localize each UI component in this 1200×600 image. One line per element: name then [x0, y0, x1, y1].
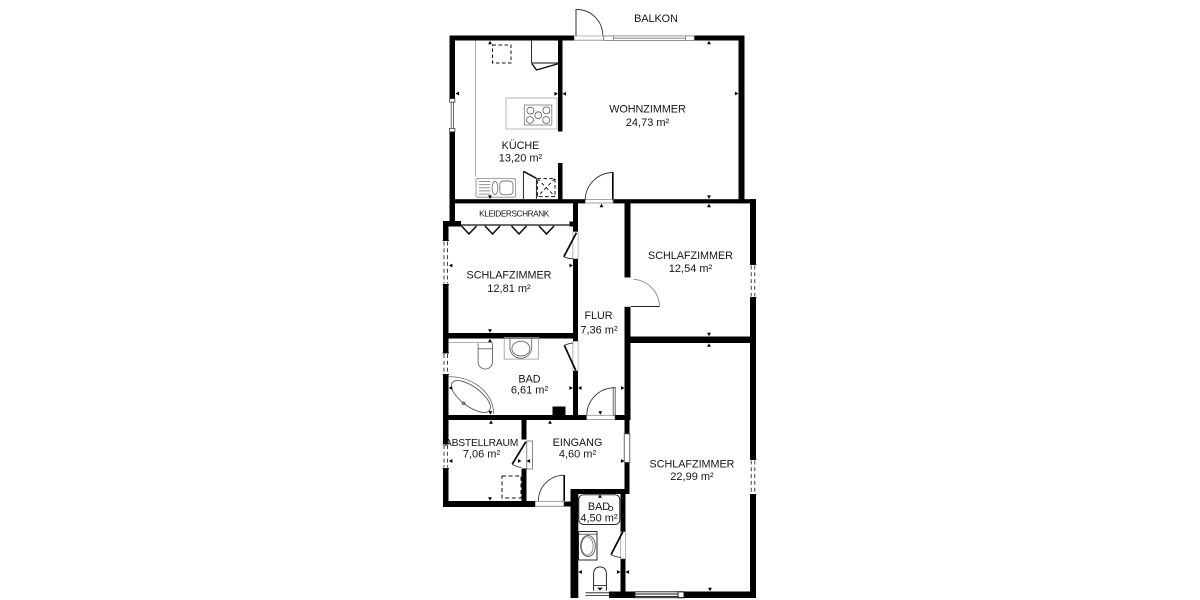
svg-text:ABSTELLRAUM: ABSTELLRAUM	[445, 438, 518, 449]
svg-text:KLEIDERSCHRANK: KLEIDERSCHRANK	[479, 209, 550, 219]
svg-text:6,61 m²: 6,61 m²	[511, 385, 549, 397]
svg-text:SCHLAFZIMMER: SCHLAFZIMMER	[648, 250, 733, 262]
svg-text:BAD: BAD	[588, 501, 610, 513]
svg-text:BALKON: BALKON	[634, 13, 678, 25]
svg-text:24,73 m²: 24,73 m²	[626, 117, 670, 129]
svg-text:22,99 m²: 22,99 m²	[670, 471, 714, 483]
svg-text:7,06 m²: 7,06 m²	[463, 449, 501, 461]
svg-text:12,54 m²: 12,54 m²	[669, 263, 713, 275]
svg-text:SCHLAFZIMMER: SCHLAFZIMMER	[650, 459, 735, 471]
svg-text:KÜCHE: KÜCHE	[502, 140, 540, 152]
svg-text:SCHLAFZIMMER: SCHLAFZIMMER	[467, 270, 552, 282]
svg-text:12,81 m²: 12,81 m²	[487, 283, 531, 295]
svg-text:4,50 m²: 4,50 m²	[580, 513, 618, 525]
svg-text:WOHNZIMMER: WOHNZIMMER	[609, 104, 686, 116]
svg-text:13,20 m²: 13,20 m²	[499, 153, 543, 165]
svg-text:7,36 m²: 7,36 m²	[580, 325, 618, 337]
svg-text:EINGANG: EINGANG	[553, 437, 603, 449]
svg-text:FLUR: FLUR	[584, 310, 612, 322]
svg-text:4,60 m²: 4,60 m²	[559, 449, 597, 461]
